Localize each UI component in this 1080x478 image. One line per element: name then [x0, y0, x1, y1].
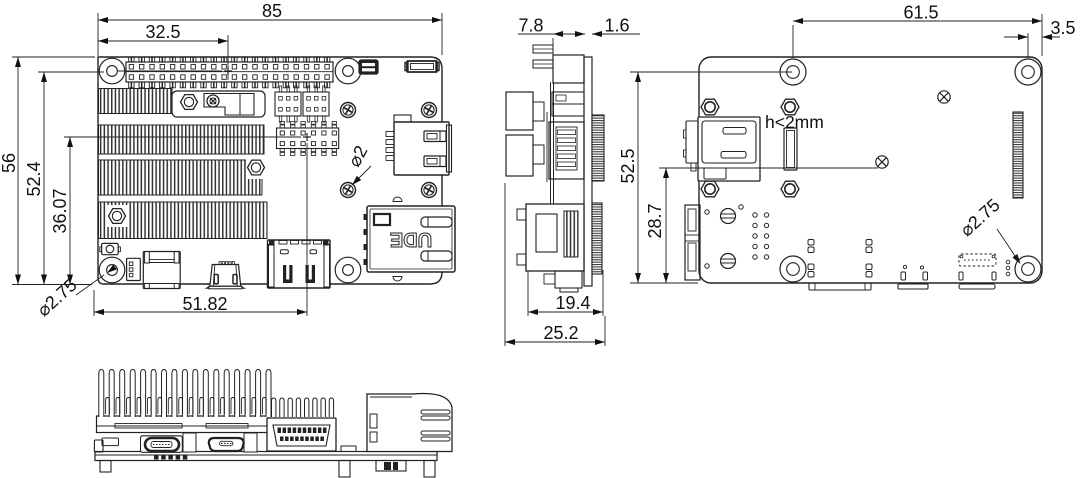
svg-text:56: 56: [0, 153, 19, 173]
svg-text:85: 85: [262, 1, 282, 21]
svg-text:19.4: 19.4: [555, 293, 590, 313]
svg-text:1.6: 1.6: [604, 16, 629, 36]
svg-text:h<2mm: h<2mm: [765, 112, 824, 132]
svg-text:36.07: 36.07: [50, 188, 70, 233]
svg-text:52.4: 52.4: [24, 161, 44, 196]
svg-text:7.8: 7.8: [518, 16, 543, 36]
svg-text:32.5: 32.5: [145, 22, 180, 42]
svg-text:25.2: 25.2: [543, 323, 578, 343]
svg-text:51.82: 51.82: [182, 294, 227, 314]
svg-text:3.5: 3.5: [1050, 18, 1075, 38]
svg-text:61.5: 61.5: [903, 3, 938, 23]
svg-text:52.5: 52.5: [618, 148, 638, 183]
svg-text:28.7: 28.7: [645, 203, 665, 238]
svg-text:UDE: UDE: [390, 228, 432, 250]
